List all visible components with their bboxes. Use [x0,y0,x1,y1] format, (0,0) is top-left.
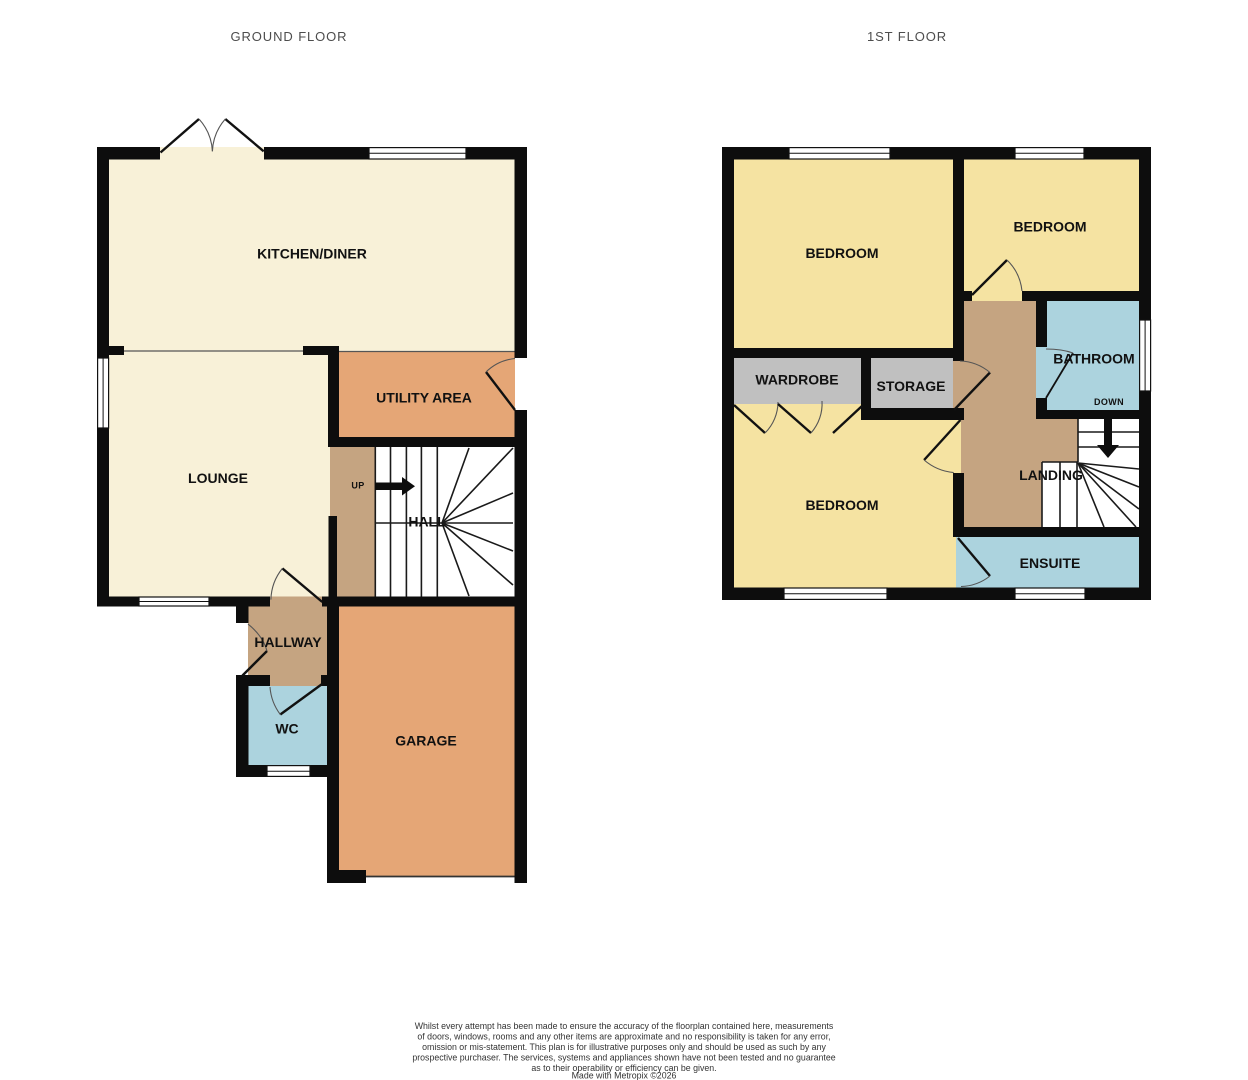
svg-text:HALLWAY: HALLWAY [254,634,322,650]
svg-text:1ST FLOOR: 1ST FLOOR [867,29,947,44]
svg-text:of doors, windows, rooms and a: of doors, windows, rooms and any other i… [417,1032,830,1042]
svg-text:WARDROBE: WARDROBE [755,372,838,388]
svg-text:GARAGE: GARAGE [395,733,456,749]
svg-text:KITCHEN/DINER: KITCHEN/DINER [257,246,367,262]
svg-text:HALL: HALL [408,514,446,530]
svg-text:STORAGE: STORAGE [877,378,946,394]
svg-text:LANDING: LANDING [1019,467,1083,483]
svg-text:WC: WC [275,721,298,737]
svg-text:LOUNGE: LOUNGE [188,470,248,486]
svg-text:Whilst every attempt has been: Whilst every attempt has been made to en… [415,1021,834,1031]
svg-text:GROUND FLOOR: GROUND FLOOR [231,29,348,44]
svg-text:BATHROOM: BATHROOM [1053,351,1134,367]
svg-text:BEDROOM: BEDROOM [805,245,878,261]
svg-text:UTILITY AREA: UTILITY AREA [376,390,472,406]
svg-text:UP: UP [351,481,364,491]
svg-text:BEDROOM: BEDROOM [1013,219,1086,235]
svg-text:BEDROOM: BEDROOM [805,497,878,513]
svg-text:prospective purchaser. The ser: prospective purchaser. The services, sys… [412,1053,835,1063]
svg-text:omission or mis-statement. Thi: omission or mis-statement. This plan is … [422,1042,826,1052]
svg-text:Made with Metropix ©2026: Made with Metropix ©2026 [572,1071,677,1080]
svg-text:DOWN: DOWN [1094,397,1124,407]
svg-text:ENSUITE: ENSUITE [1020,555,1081,571]
